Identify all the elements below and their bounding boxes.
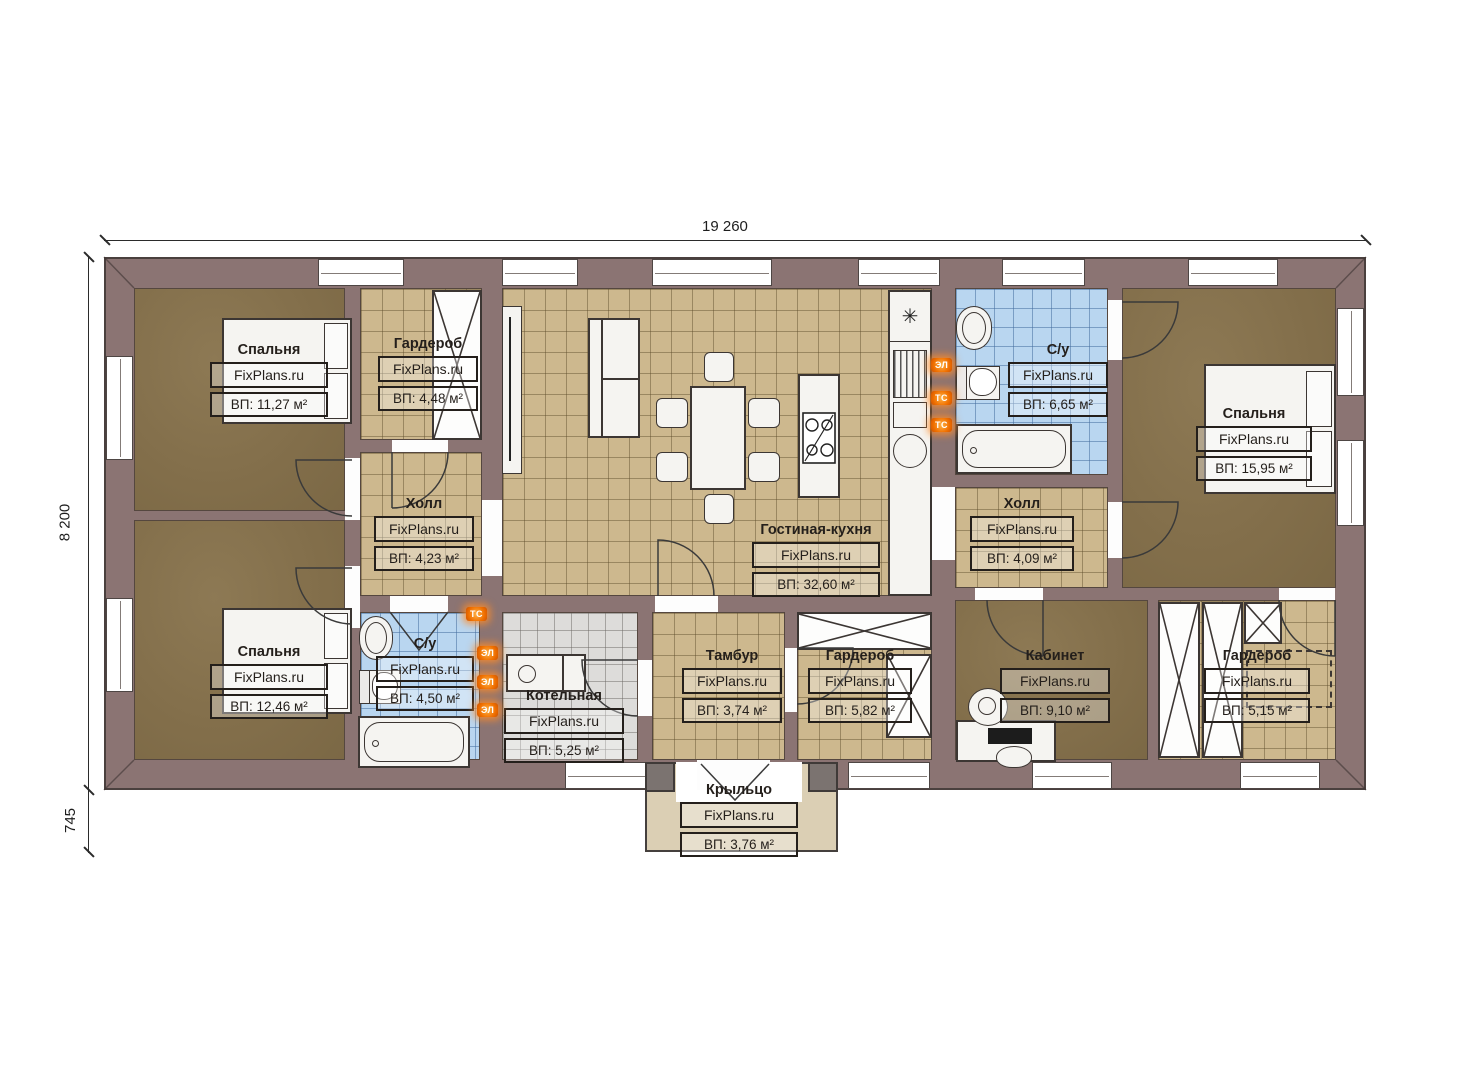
- room-name: Спальня: [210, 342, 328, 359]
- wardrobe-unit: [1244, 602, 1282, 644]
- room-area: ВП: 15,95 м²: [1196, 456, 1312, 481]
- window: [1337, 440, 1364, 526]
- fridge-snowflake-icon: ✳: [890, 292, 930, 342]
- room-watermark: FixPlans.ru: [680, 802, 798, 828]
- room-watermark: FixPlans.ru: [1196, 426, 1312, 452]
- dimension-height-label: 8 200: [56, 504, 73, 542]
- door-opening: [1279, 588, 1335, 600]
- electric-meter-icon: ЭЛ: [477, 703, 498, 717]
- door-opening: [785, 648, 797, 712]
- tv-console: [502, 306, 522, 474]
- chair: [704, 352, 734, 382]
- cooktop-icon: [802, 412, 836, 464]
- room-label-bedroom-2: Спальня FixPlans.ru ВП: 12,46 м²: [210, 644, 328, 719]
- window: [652, 259, 772, 286]
- room-name: Гардероб: [378, 336, 478, 353]
- room-area: ВП: 4,23 м²: [374, 546, 474, 571]
- door-opening: [390, 596, 448, 612]
- room-name: Спальня: [1196, 406, 1312, 423]
- dimension-width-label: 19 260: [702, 218, 748, 235]
- room-name: Кабинет: [1000, 648, 1110, 665]
- room-area: ВП: 5,25 м²: [504, 738, 624, 763]
- room-name: Крыльцо: [680, 782, 798, 799]
- room-label-office: Кабинет FixPlans.ru ВП: 9,10 м²: [1000, 648, 1110, 723]
- window: [565, 762, 648, 789]
- room-name: С/у: [376, 636, 474, 653]
- room-name: Гардероб: [1204, 648, 1310, 665]
- dimension-tick: [83, 784, 94, 795]
- room-watermark: FixPlans.ru: [210, 664, 328, 690]
- dimension-tick: [83, 251, 94, 262]
- room-label-tambour: Тамбур FixPlans.ru ВП: 3,74 м²: [682, 648, 782, 723]
- bathtub: [358, 716, 470, 768]
- room-name: Холл: [970, 496, 1074, 513]
- dimension-line-porch: [88, 790, 89, 853]
- room-label-bedroom-1: Спальня FixPlans.ru ВП: 11,27 м²: [210, 342, 328, 417]
- electric-meter-icon: ЭЛ: [477, 646, 498, 660]
- dimension-line-left: [88, 257, 89, 790]
- door-opening: [975, 588, 1043, 600]
- window: [1337, 308, 1364, 396]
- room-area: ВП: 6,65 м²: [1008, 392, 1108, 417]
- window: [318, 259, 404, 286]
- room-area: ВП: 5,82 м²: [808, 698, 912, 723]
- room-area: ВП: 4,09 м²: [970, 546, 1074, 571]
- room-name: Холл: [374, 496, 474, 513]
- chair: [656, 398, 688, 428]
- room-watermark: FixPlans.ru: [808, 668, 912, 694]
- room-area: ВП: 11,27 м²: [210, 392, 328, 417]
- room-watermark: FixPlans.ru: [682, 668, 782, 694]
- window: [1002, 259, 1085, 286]
- room-area: ВП: 9,10 м²: [1000, 698, 1110, 723]
- room-label-wardrobe-2: Гардероб FixPlans.ru ВП: 5,82 м²: [808, 648, 912, 723]
- room-area: ВП: 4,48 м²: [378, 386, 478, 411]
- room-name: Тамбур: [682, 648, 782, 665]
- door-opening: [392, 440, 448, 452]
- counter-module: [893, 402, 927, 428]
- room-label-bathroom-1: С/у FixPlans.ru ВП: 6,65 м²: [1008, 342, 1108, 417]
- room-label-porch: Крыльцо FixPlans.ru ВП: 3,76 м²: [680, 782, 798, 857]
- room-watermark: FixPlans.ru: [376, 656, 474, 682]
- floor-plan: 19 260 8 200 745: [0, 0, 1473, 1080]
- window: [106, 598, 133, 692]
- room-area: ВП: 3,74 м²: [682, 698, 782, 723]
- heating-meter-icon: ТС: [931, 391, 952, 405]
- room-label-bathroom-2: С/у FixPlans.ru ВП: 4,50 м²: [376, 636, 474, 711]
- window: [1240, 762, 1320, 789]
- window: [106, 356, 133, 460]
- passage-opening: [482, 500, 502, 576]
- dimension-tick: [83, 846, 94, 857]
- dish-rack: [893, 350, 927, 398]
- chair: [704, 494, 734, 524]
- kitchen-sink: [893, 434, 927, 468]
- kitchen-island: [798, 374, 840, 498]
- porch-pillar: [808, 762, 838, 792]
- room-name: Котельная: [504, 688, 624, 705]
- room-name: Гардероб: [808, 648, 912, 665]
- window: [858, 259, 940, 286]
- sofa: [588, 318, 640, 438]
- heating-meter-icon: ТС: [931, 418, 952, 432]
- washbasin: [956, 306, 992, 350]
- dimension-line-top: [104, 240, 1366, 241]
- kitchen-counter: ✳: [888, 290, 932, 596]
- dimension-porch-label: 745: [62, 808, 79, 833]
- monitor: [988, 728, 1032, 744]
- room-watermark: FixPlans.ru: [970, 516, 1074, 542]
- room-label-hall-1: Холл FixPlans.ru ВП: 4,23 м²: [374, 496, 474, 571]
- door-opening: [655, 596, 718, 612]
- room-name: С/у: [1008, 342, 1108, 359]
- room-watermark: FixPlans.ru: [210, 362, 328, 388]
- door-opening: [1108, 300, 1122, 360]
- bathtub: [956, 424, 1072, 474]
- door-opening: [638, 660, 652, 716]
- room-watermark: FixPlans.ru: [1204, 668, 1310, 694]
- room-label-bedroom-3: Спальня FixPlans.ru ВП: 15,95 м²: [1196, 406, 1312, 481]
- toilet: [956, 366, 1000, 400]
- room-watermark: FixPlans.ru: [378, 356, 478, 382]
- wardrobe-unit: [1158, 602, 1200, 758]
- room-name: Спальня: [210, 644, 328, 661]
- room-label-living-kitchen: Гостиная-кухня FixPlans.ru ВП: 32,60 м²: [752, 522, 880, 597]
- office-chair: [996, 746, 1032, 768]
- passage-opening: [932, 487, 955, 560]
- room-watermark: FixPlans.ru: [504, 708, 624, 734]
- dining-table: [690, 386, 746, 490]
- electric-meter-icon: ЭЛ: [477, 675, 498, 689]
- room-watermark: FixPlans.ru: [374, 516, 474, 542]
- electric-meter-icon: ЭЛ: [931, 358, 952, 372]
- room-label-hall-2: Холл FixPlans.ru ВП: 4,09 м²: [970, 496, 1074, 571]
- room-watermark: FixPlans.ru: [1008, 362, 1108, 388]
- room-area: ВП: 32,60 м²: [752, 572, 880, 597]
- room-label-wardrobe-1: Гардероб FixPlans.ru ВП: 4,48 м²: [378, 336, 478, 411]
- room-area: ВП: 3,76 м²: [680, 832, 798, 857]
- room-watermark: FixPlans.ru: [752, 542, 880, 568]
- window: [502, 259, 578, 286]
- room-watermark: FixPlans.ru: [1000, 668, 1110, 694]
- heating-meter-icon: ТС: [466, 607, 487, 621]
- door-opening: [1108, 502, 1122, 558]
- chair: [748, 452, 780, 482]
- window: [1188, 259, 1278, 286]
- room-label-wardrobe-3: Гардероб FixPlans.ru ВП: 5,15 м²: [1204, 648, 1310, 723]
- porch-pillar: [645, 762, 675, 792]
- chair: [656, 452, 688, 482]
- room-area: ВП: 12,46 м²: [210, 694, 328, 719]
- room-area: ВП: 5,15 м²: [1204, 698, 1310, 723]
- room-name: Гостиная-кухня: [752, 522, 880, 539]
- room-area: ВП: 4,50 м²: [376, 686, 474, 711]
- door-opening: [345, 458, 360, 520]
- boiler-unit: [506, 654, 586, 692]
- wardrobe-unit: [797, 612, 932, 650]
- room-label-boiler: Котельная FixPlans.ru ВП: 5,25 м²: [504, 688, 624, 763]
- window: [1032, 762, 1112, 789]
- window: [848, 762, 930, 789]
- chair: [748, 398, 780, 428]
